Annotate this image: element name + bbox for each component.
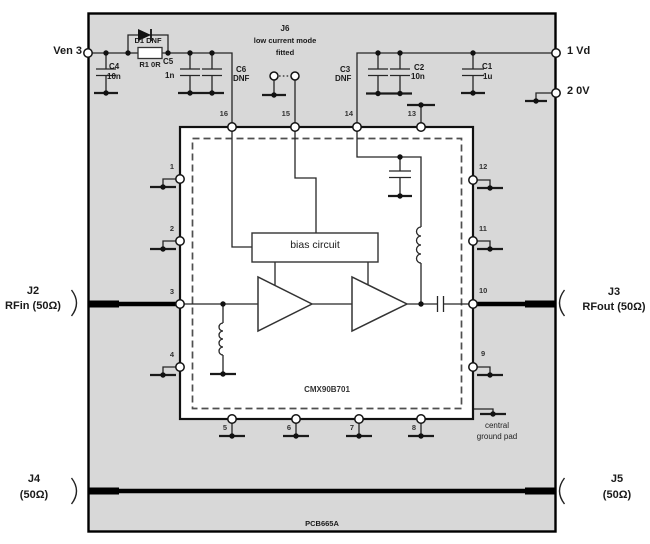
capacitor-c3-value: DNF [335, 75, 351, 83]
capacitor-c5-value: 1n [165, 72, 174, 80]
diode-d1-label: D1 DNF [122, 37, 174, 45]
capacitor-c2-value: 10n [411, 73, 425, 81]
central-ground-pad-label-line1: central [455, 422, 539, 430]
connector-j2-name: J2 [0, 286, 66, 298]
capacitor-c1-ref: C1 [482, 63, 492, 71]
central-ground-pad-label-line2: ground pad [455, 433, 539, 441]
pin-1-label: 1 [150, 163, 174, 171]
pin-16-label: 16 [204, 110, 228, 118]
capacitor-c4-value: 10n [107, 73, 121, 81]
jumper-j6-desc: low current mode [235, 37, 335, 45]
pin-1-circle [176, 175, 184, 183]
pin-16-circle [228, 123, 236, 131]
terminal-2-0v-label: 2 0V [567, 86, 590, 98]
pin-6-label: 6 [267, 424, 291, 432]
jumper-j6-pad-left [270, 72, 278, 80]
terminal-1vd-label: 1 Vd [567, 46, 590, 58]
pin-8-label: 8 [392, 424, 416, 432]
capacitor-c4-ref: C4 [109, 63, 119, 71]
pin-2-circle [176, 237, 184, 245]
pin-12-label: 12 [479, 163, 487, 171]
connector-j2-desc: RFin (50Ω) [0, 301, 66, 313]
pin-13-label: 13 [392, 110, 416, 118]
jumper-j6-pad-right [291, 72, 299, 80]
connector-j5-desc: (50Ω) [582, 490, 650, 502]
pin-14-label: 14 [329, 110, 353, 118]
pin-15-circle [291, 123, 299, 131]
chip-name-label: CMX90B701 [277, 386, 377, 394]
pin-9-label: 9 [481, 350, 485, 358]
pin-2-label: 2 [150, 225, 174, 233]
connector-j4-arc [72, 478, 77, 504]
pin-15-label: 15 [266, 110, 290, 118]
jumper-j6-name: J6 [235, 25, 335, 33]
pin-3-circle [176, 300, 184, 308]
connector-j3-name: J3 [578, 287, 650, 299]
terminal-ven3-circle [84, 49, 92, 57]
resistor-r1-symbol [138, 48, 162, 59]
pin-10-circle [469, 300, 477, 308]
connector-j3-desc: RFout (50Ω) [578, 302, 650, 314]
pin-13-circle [417, 123, 425, 131]
terminal-1vd-circle [552, 49, 560, 57]
connector-j2-arc [72, 290, 77, 316]
pin-10-label: 10 [479, 287, 487, 295]
pin-6-circle [292, 415, 300, 423]
pin-12-circle [469, 176, 477, 184]
terminal-2-0v-circle [552, 89, 560, 97]
pin-14-circle [353, 123, 361, 131]
schematic-drawing [0, 0, 650, 544]
pin-5-label: 5 [203, 424, 227, 432]
connector-j5-arc [560, 478, 565, 504]
capacitor-c6-value: DNF [233, 75, 249, 83]
pin-4-label: 4 [150, 351, 174, 359]
pin-8-circle [417, 415, 425, 423]
terminal-ven3-label: Ven 3 [28, 46, 82, 58]
connector-j3-arc [560, 290, 565, 316]
pin-11-label: 11 [479, 225, 487, 233]
pcb-ref-label: PCB665A [272, 520, 372, 528]
pin-3-label: 3 [150, 288, 174, 296]
jumper-j6-state: fitted [235, 49, 335, 57]
capacitor-c1-value: 1u [483, 73, 492, 81]
pin-9-circle [469, 363, 477, 371]
schematic-canvas: Ven 3 1 Vd 2 0V D1 DNF R1 0R C4 10n C5 1… [0, 0, 650, 544]
pin-7-circle [355, 415, 363, 423]
pin-4-circle [176, 363, 184, 371]
pin-5-circle [228, 415, 236, 423]
capacitor-c5-ref: C5 [163, 58, 173, 66]
connector-j4-name: J4 [2, 474, 66, 486]
connector-j4-desc: (50Ω) [2, 490, 66, 502]
pin-7-label: 7 [330, 424, 354, 432]
connector-j5-name: J5 [582, 474, 650, 486]
pin-11-circle [469, 237, 477, 245]
bias-circuit-label: bias circuit [252, 240, 378, 251]
